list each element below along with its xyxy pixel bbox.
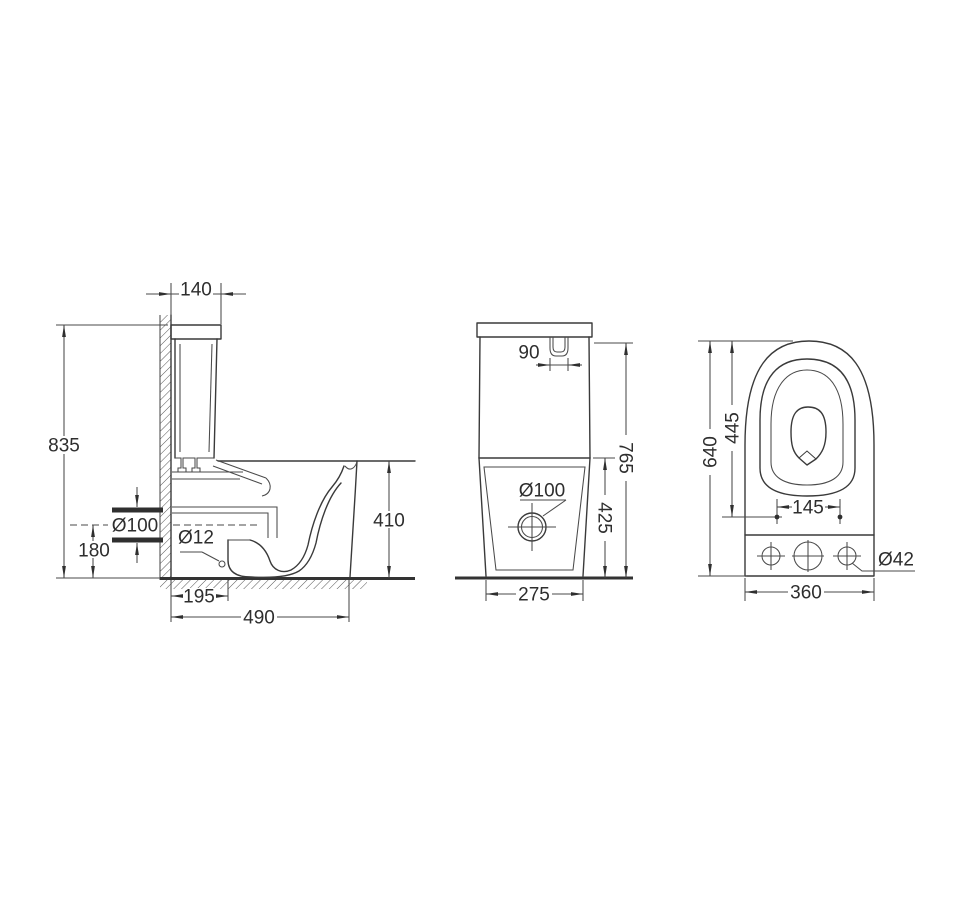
dim-label-fixing-spacing: 145 (792, 498, 824, 519)
dim-fixing-hole: Ø12 (178, 528, 225, 568)
dim-label-drain-diameter: Ø100 (519, 481, 565, 502)
water-surface (791, 407, 826, 465)
dim-label-outlet-setback: 195 (183, 587, 215, 608)
front-view: Ø100 90 425 765 (455, 323, 636, 606)
tank-base-profile (175, 458, 214, 472)
dim-label-base-width: 275 (518, 585, 550, 606)
rim-front-hook (345, 462, 357, 469)
dim-label-outlet-height: 180 (78, 541, 110, 562)
dim-seat-length: 445 (723, 341, 744, 517)
rim-spout (262, 478, 270, 496)
dim-label-overall-depth: 490 (243, 608, 275, 629)
dim-overall-width: 360 (745, 578, 874, 604)
top-outline (745, 341, 874, 576)
dim-label-overall-length: 640 (701, 436, 722, 468)
front-drain: Ø100 (508, 481, 566, 552)
dim-label-bowl-section-height: 425 (594, 502, 615, 534)
dim-base-width: 275 (486, 580, 583, 606)
dim-label-overall-width: 360 (790, 583, 822, 604)
toilet-dimension-drawing: 140 835 Ø100 180 (0, 0, 954, 915)
tank-section (171, 325, 221, 472)
top-view: Ø42 145 640 (698, 341, 915, 604)
dim-rim-height: 410 (370, 461, 408, 578)
dim-outlet-height: 180 (76, 525, 112, 578)
front-tank-lid (477, 323, 592, 337)
dim-label-rim-height: 410 (373, 511, 405, 532)
foot-holes (757, 540, 861, 572)
drawing-page: 140 835 Ø100 180 (0, 0, 954, 915)
dim-label-outlet-diameter: Ø100 (112, 516, 158, 537)
bowl-front-face (350, 461, 357, 577)
fixing-point-left (775, 515, 780, 520)
dim-label-button-width: 90 (518, 343, 539, 364)
dim-label-side-hole: Ø42 (878, 550, 914, 571)
seat-outer-ring (760, 359, 855, 496)
fixing-hole (219, 561, 225, 567)
dim-bowl-section-height: 425 (593, 458, 615, 578)
dim-label-overall-height: 765 (615, 442, 636, 474)
fixing-point-right (838, 515, 843, 520)
dim-outlet-diameter: Ø100 (112, 487, 158, 563)
tank-lid (171, 325, 221, 339)
side-view: 140 835 Ø100 180 (45, 280, 415, 629)
dim-label-seat-length: 445 (723, 412, 744, 444)
seat-inner-ring (771, 370, 843, 485)
dim-fixing-spacing: 145 (722, 498, 842, 525)
dim-label-fixing-hole: Ø12 (178, 528, 214, 549)
dim-label-tank-depth: 140 (180, 280, 212, 301)
dim-label-total-height: 835 (48, 436, 80, 457)
dim-overall-height: 765 (594, 343, 636, 578)
trapway-inner (250, 466, 344, 572)
dim-side-hole: Ø42 (852, 550, 915, 572)
